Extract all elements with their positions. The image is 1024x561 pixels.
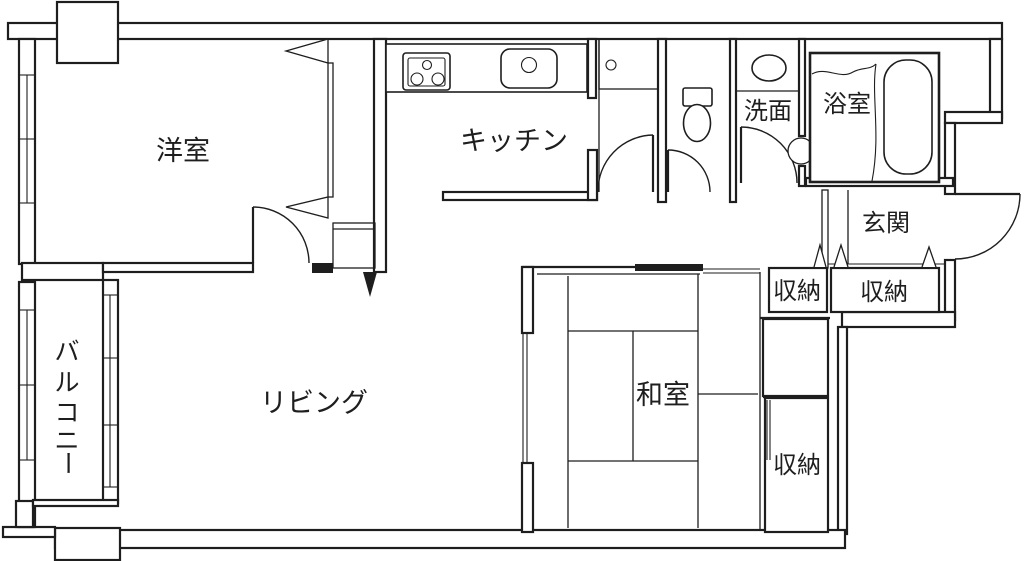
svg-text:ー: ー bbox=[53, 450, 82, 475]
closet-door-mark-icon bbox=[286, 197, 328, 218]
wall-right-lower bbox=[838, 327, 847, 534]
utility-counter bbox=[599, 39, 658, 89]
label-balcony: バ ル コ ニ ー bbox=[53, 337, 82, 476]
label-japanese-room: 和室 bbox=[636, 380, 690, 411]
wash-basin-icon bbox=[752, 55, 786, 81]
utility-space bbox=[599, 39, 658, 192]
label-kitchen: キッチン bbox=[460, 126, 568, 157]
closet-door-mark-icon bbox=[922, 247, 936, 267]
washroom-fixtures bbox=[736, 55, 799, 91]
label-bathroom: 浴室 bbox=[823, 90, 871, 118]
japanese-room-closet-box bbox=[763, 319, 828, 396]
entrance-door-arc bbox=[955, 194, 1020, 259]
floor-plan: 洋室 キッチン 洗面 浴室 玄関 収納 収納 リビング 和室 収納 バ ル コ … bbox=[0, 0, 1024, 561]
opening-marker-triangle-icon bbox=[363, 272, 377, 297]
wall-kitchen-bottom bbox=[443, 192, 597, 200]
western-room-door-arc bbox=[253, 207, 309, 263]
pillar-top bbox=[57, 2, 118, 63]
wall-washroom-right-lower bbox=[799, 166, 805, 186]
svg-text:コ: コ bbox=[54, 398, 79, 427]
pillar-bottom bbox=[55, 528, 120, 560]
label-entrance: 玄関 bbox=[862, 209, 910, 237]
wall-bottom bbox=[55, 530, 845, 548]
label-western-room: 洋室 bbox=[156, 136, 210, 167]
wall-right-upper bbox=[990, 39, 1002, 118]
wall-western-balcony bbox=[22, 263, 103, 280]
wall-toilet-left bbox=[658, 39, 666, 202]
wall-toilet-right bbox=[730, 39, 736, 202]
japanese-room-lintel-bar bbox=[635, 264, 703, 271]
floor-plan-svg: 洋室 キッチン 洗面 浴室 玄関 収納 収納 リビング 和室 収納 バ ル コ … bbox=[0, 0, 1024, 561]
wall-kitchen-right bbox=[588, 39, 596, 98]
japanese-room-left-wall-upper bbox=[522, 267, 533, 333]
wall-washroom-right-upper bbox=[799, 39, 805, 136]
wall-western-bottom bbox=[103, 263, 253, 272]
wall-balcony-bottom-bar bbox=[3, 527, 55, 537]
label-living: リビング bbox=[260, 388, 368, 419]
label-storage-hall-left: 収納 bbox=[773, 277, 821, 305]
closet-door-mark-icon bbox=[834, 245, 848, 267]
closet-door-mark-icon bbox=[286, 39, 328, 63]
wall-top bbox=[8, 23, 1002, 39]
wall-balcony-bottom bbox=[33, 500, 118, 506]
wall-kitchen-bottom-stub bbox=[588, 150, 597, 200]
western-room-closet bbox=[286, 39, 377, 297]
wall-right-step bbox=[945, 112, 1002, 123]
toilet-door-arc bbox=[668, 150, 710, 192]
bathtub-icon bbox=[884, 60, 932, 174]
toilet-bowl-icon bbox=[684, 105, 711, 142]
wall-junction-block bbox=[312, 263, 333, 273]
japanese-room-left-wall-lower bbox=[522, 463, 533, 532]
kitchen-fixtures bbox=[386, 44, 587, 92]
wall-kitchen-left bbox=[374, 39, 386, 272]
closet-front-rail bbox=[328, 63, 333, 197]
wall-bottom-right-step bbox=[842, 312, 955, 327]
hallway-door-arc bbox=[598, 135, 653, 192]
toilet-room bbox=[683, 88, 712, 142]
wall-balcony-corner-block bbox=[16, 501, 33, 527]
closet-lower-box bbox=[333, 223, 375, 268]
label-storage-hall-right: 収納 bbox=[860, 278, 908, 306]
kitchen-sink-icon bbox=[501, 49, 557, 88]
closet-door-mark-icon bbox=[814, 245, 826, 267]
label-storage-japanese: 収納 bbox=[773, 451, 821, 479]
label-washroom: 洗面 bbox=[744, 97, 792, 125]
svg-text:バ: バ bbox=[54, 337, 79, 366]
toilet-tank-icon bbox=[683, 88, 712, 106]
svg-text:ル: ル bbox=[54, 368, 79, 397]
utility-water-point-icon bbox=[606, 60, 616, 70]
